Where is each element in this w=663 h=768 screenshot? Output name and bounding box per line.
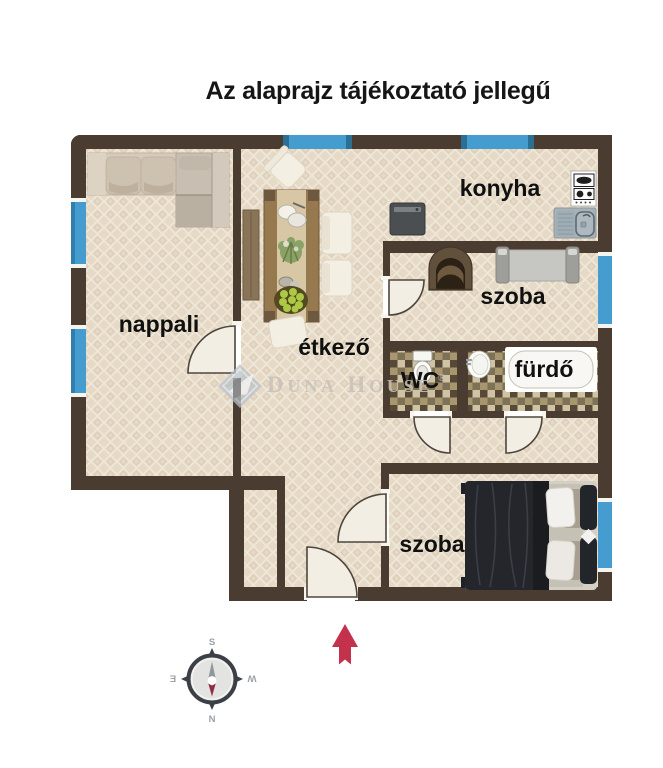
svg-text:konyha: konyha	[460, 175, 541, 201]
svg-text:E: E	[170, 673, 176, 684]
svg-text:Az alaprajz tájékoztató jelleg: Az alaprajz tájékoztató jellegű	[206, 77, 551, 105]
svg-text:fürdő: fürdő	[515, 356, 574, 382]
svg-text:®: ®	[438, 373, 446, 384]
svg-text:nappali: nappali	[119, 311, 200, 337]
svg-text:N: N	[209, 714, 216, 725]
svg-text:szoba: szoba	[399, 531, 464, 557]
svg-text:szoba: szoba	[480, 283, 545, 309]
svg-text:W: W	[247, 673, 256, 684]
svg-text:S: S	[209, 637, 215, 648]
svg-text:étkező: étkező	[298, 334, 370, 360]
svg-text:DUNA HOUSE: DUNA HOUSE	[267, 372, 433, 397]
